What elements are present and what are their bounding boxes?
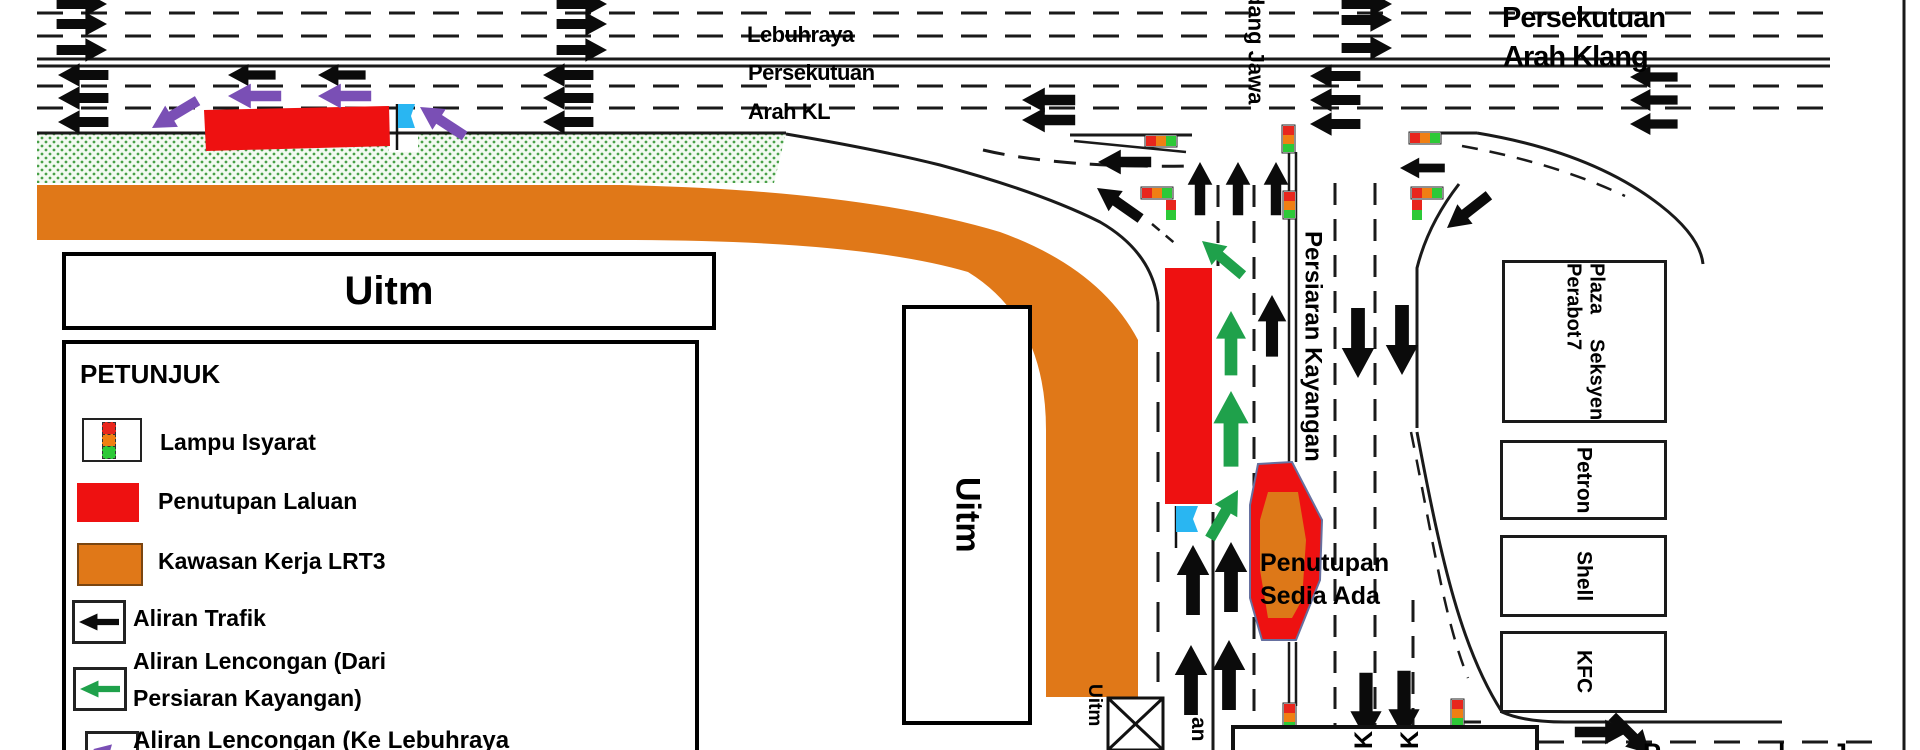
arrow-east-icon xyxy=(57,12,107,35)
traffic-light-icon xyxy=(1283,191,1296,219)
arrow-east-icon xyxy=(1342,36,1392,59)
bottom-road-label-fragment: P xyxy=(1643,738,1683,750)
arrow-west-icon xyxy=(58,86,108,109)
traffic-light-icon xyxy=(1409,132,1441,144)
lane-closure-top xyxy=(204,106,390,151)
highway-label-kl-3: Arah KL xyxy=(748,99,830,124)
green-arrow-icon xyxy=(1213,391,1248,467)
arrow-turn-in-icon xyxy=(1439,186,1496,238)
building-shell: Shell xyxy=(1500,535,1667,617)
traffic-light-icon xyxy=(1451,699,1464,727)
sign-k2-label: K xyxy=(1396,731,1425,749)
road-label-kayangan-tail: an xyxy=(1186,717,1210,750)
arrow-north-icon xyxy=(1215,542,1248,612)
traffic-diversion-diagram: Lebuhraya Persekutuan Arah KL Persekutua… xyxy=(0,0,1920,750)
uitm-main-label: Uitm xyxy=(345,269,434,314)
uitm-vertical-label: Uitm xyxy=(948,477,987,553)
traffic-light-icon xyxy=(1282,125,1295,153)
legend-orange-swatch xyxy=(77,543,143,586)
arrow-west-icon xyxy=(1310,64,1360,87)
legend-traffic-light-icon xyxy=(82,418,142,462)
existing-closure-line2: Sedia Ada xyxy=(1260,580,1389,613)
highway-label-kl-1: Lebuhraya xyxy=(747,22,854,47)
sign-k2: K xyxy=(1397,722,1423,750)
building-petron: Petron xyxy=(1500,440,1667,520)
uitm-small-label: Uitm xyxy=(1083,684,1105,750)
arrow-west-icon xyxy=(1022,108,1075,133)
existing-closure-line1: Penutupan xyxy=(1260,547,1389,580)
legend-label-lencongan-ke: Aliran Lencongan (Ke Lebuhraya xyxy=(133,727,509,750)
green-arrow-icon xyxy=(1216,311,1246,375)
highway-label-kl-2: Persekutuan xyxy=(748,60,875,85)
arrow-north-icon xyxy=(1226,162,1251,215)
black-arrow-icon xyxy=(77,612,121,632)
legend-label-aliran-trafik: Aliran Trafik xyxy=(133,605,266,631)
legend-green-arrow-box xyxy=(73,667,127,711)
arrow-north-icon xyxy=(1258,295,1287,357)
arrow-west-icon xyxy=(1310,112,1360,135)
arrow-slip-west-icon xyxy=(1098,150,1151,175)
arrow-north-icon xyxy=(1213,640,1246,710)
arrow-west-icon xyxy=(543,110,593,133)
bottom-road-label-fragment: J xyxy=(1832,738,1862,750)
purple-arrow-icon xyxy=(90,741,134,750)
legend-label-lencongan-dari-1: Aliran Lencongan (Dari xyxy=(133,648,386,674)
legend-title: PETUNJUK xyxy=(80,360,220,390)
direction-sign-board xyxy=(1233,727,1537,750)
arrow-slip-west-icon xyxy=(1400,158,1445,179)
arrow-north-icon xyxy=(1175,645,1208,715)
legend-red-swatch xyxy=(77,483,139,522)
road-label-padang-jawa: dang Jawa xyxy=(1243,0,1268,137)
road-label-persiaran-kayangan: Persiaran Kayangan xyxy=(1299,231,1327,511)
traffic-light-icon xyxy=(1411,187,1443,199)
sign-k1: K xyxy=(1351,722,1377,750)
arrow-west-icon xyxy=(543,86,593,109)
legend-label-lampu-isyarat: Lampu Isyarat xyxy=(160,429,316,455)
arrow-south-icon xyxy=(1386,305,1419,375)
highway-label-klang-2: Arah Klang xyxy=(1503,41,1648,74)
building-plaza-line1: Plaza Perabot xyxy=(1562,263,1608,339)
legend-purple-arrow-box xyxy=(85,731,139,750)
green-arrow-icon xyxy=(78,679,122,699)
legend-label-kawasan-kerja: Kawasan Kerja LRT3 xyxy=(158,548,386,574)
uitm-main-box: Uitm xyxy=(62,252,716,330)
building-plaza-perabot: Plaza Perabot Seksyen 7 xyxy=(1502,260,1667,423)
marker-flag-kayangan xyxy=(1176,506,1198,548)
bottom-road-label-fragment: l xyxy=(1778,738,1798,750)
legend-label-penutupan-laluan: Penutupan Laluan xyxy=(158,488,357,514)
arrow-west-icon xyxy=(58,110,108,133)
building-kfc-label: KFC xyxy=(1572,650,1596,693)
building-plaza-line2: Seksyen 7 xyxy=(1562,339,1608,420)
purple-arrow-icon xyxy=(146,90,204,139)
crossed-box-icon xyxy=(1108,698,1163,750)
sign-k1-label: K xyxy=(1350,731,1379,749)
verge-gap xyxy=(389,133,418,152)
building-petron-label: Petron xyxy=(1572,447,1596,514)
legend-label-lencongan-dari-2: Persiaran Kayangan) xyxy=(133,685,362,711)
building-shell-label: Shell xyxy=(1572,551,1596,601)
arrow-east-icon xyxy=(557,12,607,35)
legend-black-arrow-box xyxy=(72,600,126,644)
uitm-vertical-box: Uitm xyxy=(902,305,1032,725)
traffic-light-icon xyxy=(1145,135,1177,147)
arrow-south-icon xyxy=(1342,308,1375,378)
building-kfc: KFC xyxy=(1500,631,1667,713)
arrow-north-icon xyxy=(1188,162,1213,215)
arrow-north-icon xyxy=(1177,545,1210,615)
traffic-light-icon xyxy=(1141,187,1173,199)
highway-label-klang-1: Persekutuan xyxy=(1502,2,1665,35)
lane-closure-kayangan xyxy=(1165,268,1212,504)
arrow-west-icon xyxy=(1630,113,1678,135)
existing-closure-label: Penutupan Sedia Ada xyxy=(1260,547,1389,612)
